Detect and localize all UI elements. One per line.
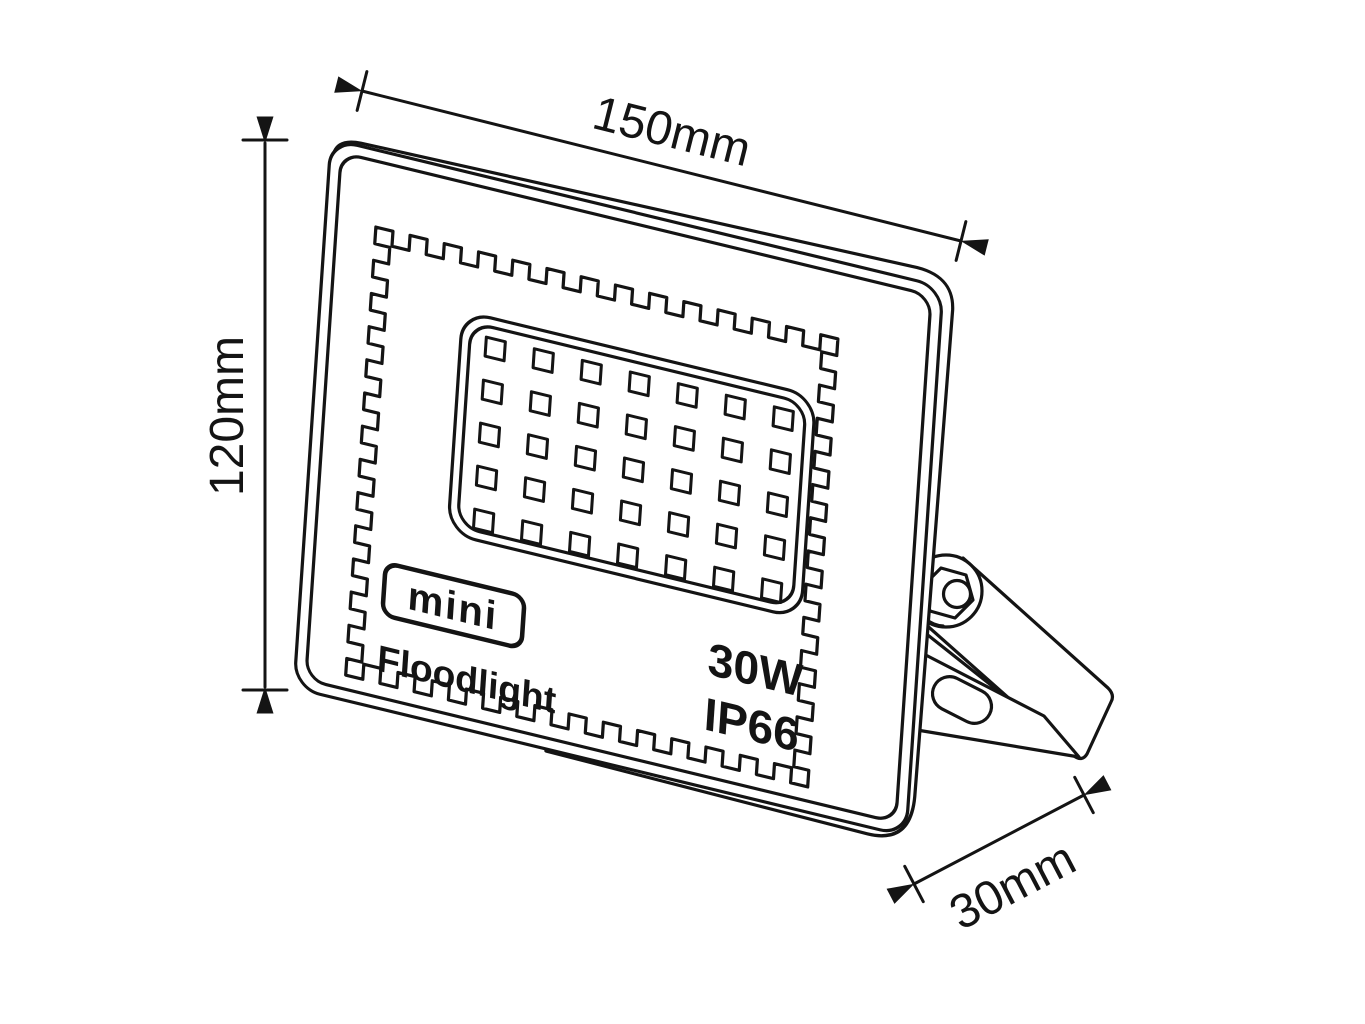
floodlight-technical-drawing: mini Floodlight 30W IP66 150mm 120mm 30m… [0,0,1365,1024]
dimension-depth-label: 30mm [941,832,1084,941]
dimension-width-label: 150mm [588,87,756,177]
mounting-bracket [910,555,1112,759]
dimension-depth: 30mm [905,777,1094,940]
dimension-height-label: 120mm [201,336,254,496]
drawing-canvas: mini Floodlight 30W IP66 150mm 120mm 30m… [0,0,1365,1024]
dimension-depth-tick-left [905,866,924,901]
dimension-depth-tick-right [1075,777,1094,812]
dimension-height: 120mm [201,140,287,690]
floodlight-body: mini Floodlight 30W IP66 [294,126,955,846]
